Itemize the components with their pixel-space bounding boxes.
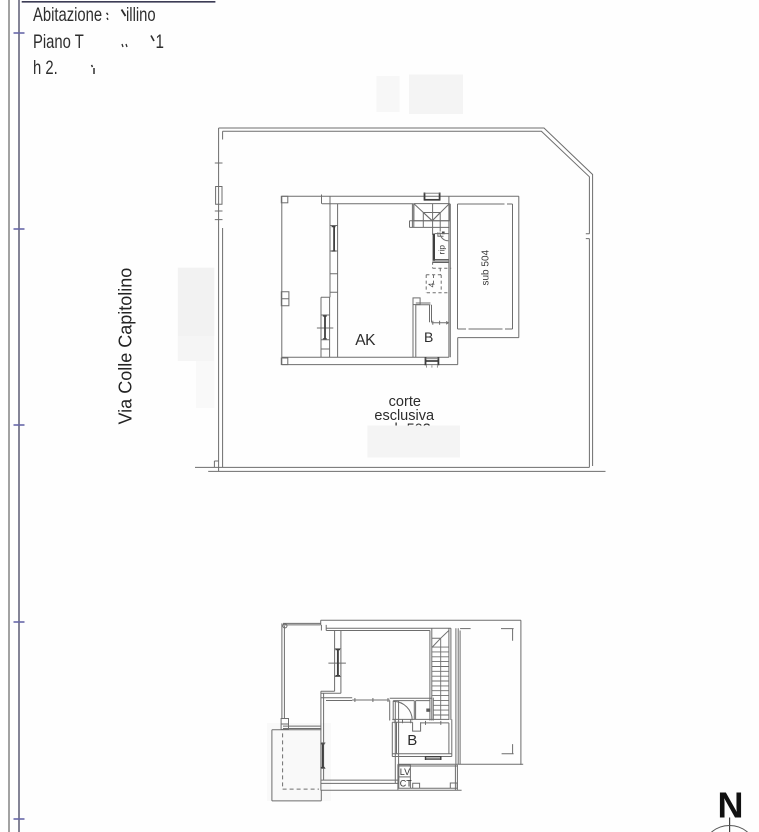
svg-text:illino: illino: [126, 4, 156, 25]
svg-text:CT: CT: [400, 779, 412, 789]
svg-text:B: B: [424, 329, 433, 345]
svg-text:N: N: [718, 785, 744, 826]
svg-text:h 2.: h 2.: [33, 57, 58, 78]
svg-text:B: B: [407, 732, 417, 749]
svg-text:Abitazione: Abitazione: [33, 4, 102, 25]
svg-text:1: 1: [156, 30, 164, 52]
svg-text:Via Colle Capitolino: Via Colle Capitolino: [116, 268, 136, 425]
svg-text:LV: LV: [400, 767, 410, 777]
svg-text:rip: rip: [437, 245, 447, 255]
svg-text:4: 4: [427, 283, 437, 288]
svg-text:Piano T: Piano T: [33, 31, 84, 52]
svg-text:sub 504: sub 504: [481, 249, 492, 285]
svg-text:AK: AK: [355, 332, 376, 349]
